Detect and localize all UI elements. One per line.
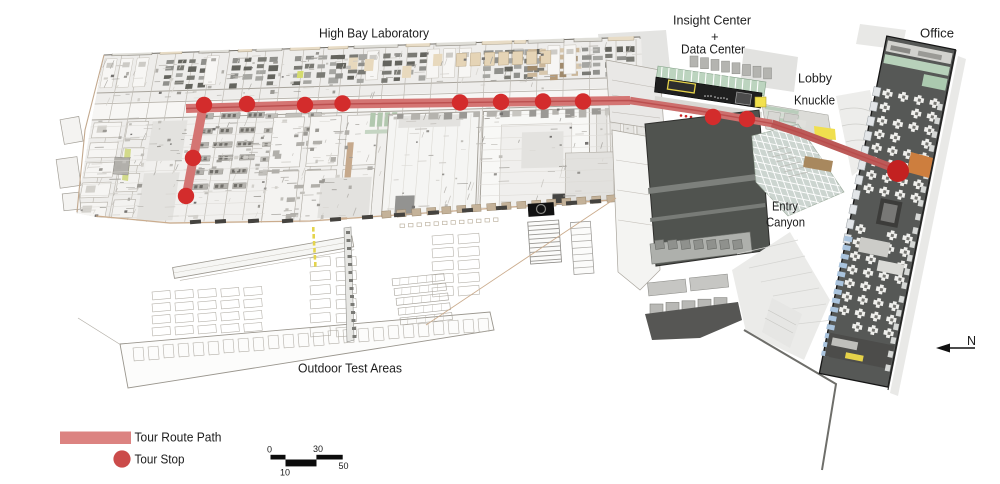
svg-text:50: 50 — [338, 461, 348, 471]
svg-text:Tour Route Path: Tour Route Path — [135, 430, 222, 445]
svg-text:Insight Center: Insight Center — [673, 13, 752, 28]
svg-text:Outdoor Test Areas: Outdoor Test Areas — [298, 361, 402, 376]
svg-text:0: 0 — [267, 445, 272, 455]
svg-text:Knuckle: Knuckle — [794, 93, 835, 108]
svg-text:Canyon: Canyon — [766, 215, 805, 230]
svg-text:30: 30 — [313, 444, 323, 454]
svg-text:10: 10 — [280, 468, 290, 478]
svg-text:High Bay Laboratory: High Bay Laboratory — [319, 26, 429, 41]
svg-text:Data Center: Data Center — [681, 42, 746, 57]
svg-text:Office: Office — [920, 26, 954, 41]
svg-text:Entry: Entry — [772, 199, 798, 214]
svg-text:Tour Stop: Tour Stop — [135, 452, 185, 467]
svg-text:N: N — [967, 334, 976, 348]
svg-text:Lobby: Lobby — [798, 71, 832, 86]
